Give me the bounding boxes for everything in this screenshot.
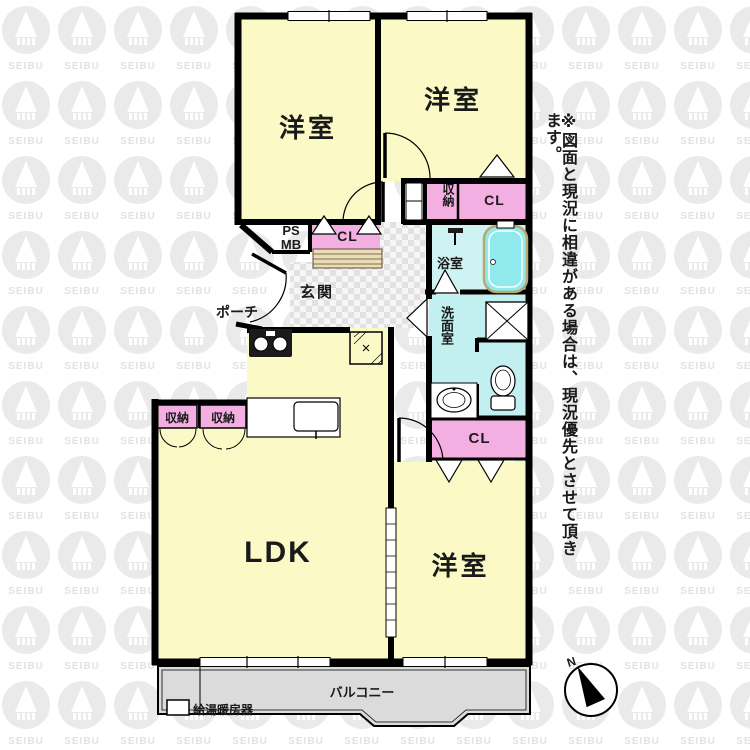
disclaimer-text: ※図面と現況に相違がある場合は、現況優先とさせて頂きます。: [543, 112, 575, 562]
pipe-space-label: PS: [272, 223, 310, 238]
storage-hall-label: 収納: [430, 183, 454, 207]
stove-icon: [249, 329, 292, 357]
entrance-tile-upper: [380, 222, 425, 262]
storage-ldk-left-label: 収納: [157, 409, 197, 426]
compass: [565, 664, 617, 716]
washbasin-icon: [431, 383, 477, 418]
porch-label: ポーチ: [216, 302, 258, 322]
ldk-label: LDK: [218, 536, 338, 570]
floorplan-drawing: SEIBU: [0, 0, 750, 750]
storage-ldk-right-label: 収納: [200, 409, 246, 426]
window-balcony-bedroom: [403, 656, 487, 668]
closet-se-label: CL: [430, 430, 529, 447]
kitchen-counter: [247, 398, 340, 439]
bathroom-label: 浴室: [437, 253, 463, 272]
bedroom-nw-label: 洋室: [243, 108, 373, 145]
entrance-label: 玄関: [300, 281, 334, 302]
bedroom-se-label: 洋室: [398, 546, 523, 583]
sliding-door-ldk-bedroom: [386, 508, 396, 637]
bedroom-ne-label: 洋室: [393, 80, 513, 117]
balcony-label: バルコニー: [312, 682, 412, 701]
meter-box-label: MB: [272, 237, 310, 252]
bathtub-icon: [484, 221, 527, 292]
closet-hall-label: CL: [310, 228, 385, 244]
window-top-ne: [407, 10, 487, 22]
floorplan-page: SEIBU: [0, 0, 750, 750]
window-balcony-ldk: [200, 656, 330, 668]
water-heater-label: 給湯暖房器: [193, 701, 253, 718]
washing-machine-pan: [486, 302, 528, 340]
toilet-icon: [491, 366, 515, 410]
window-top-nw: [288, 10, 370, 22]
water-heater-box: [167, 700, 189, 715]
linen-closet-doors: [406, 183, 422, 220]
washroom-label: 洗面室: [433, 306, 453, 345]
kitchen-sink: [294, 402, 338, 431]
closet-ne-label: CL: [460, 192, 529, 208]
shoe-cabinet: [313, 249, 382, 268]
